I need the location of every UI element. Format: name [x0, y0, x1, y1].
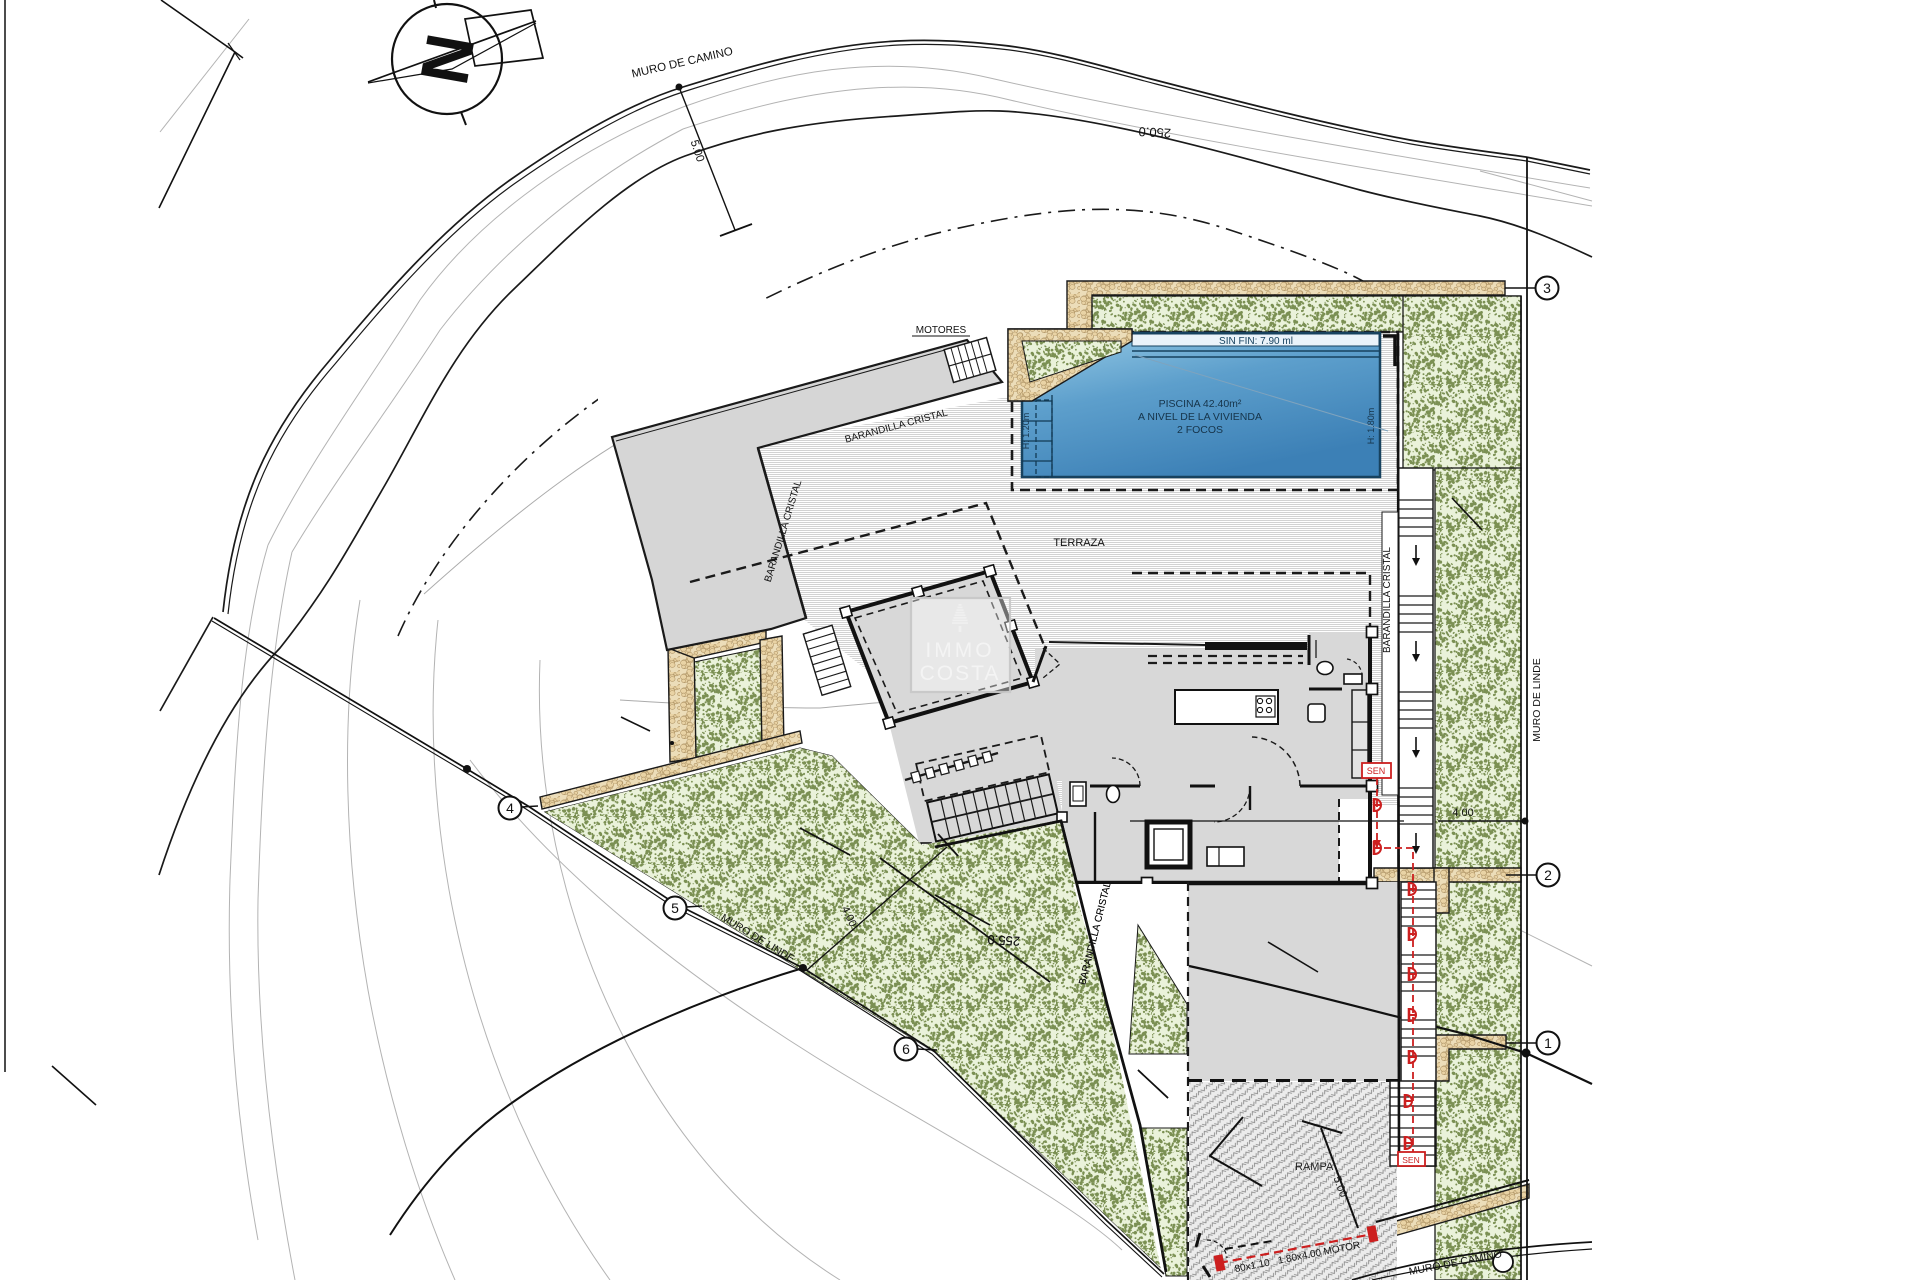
svg-text:3: 3 — [1543, 280, 1551, 296]
svg-text:BARANDILLA CRISTAL: BARANDILLA CRISTAL — [1382, 547, 1393, 653]
svg-text:2 FOCOS: 2 FOCOS — [1177, 424, 1223, 436]
svg-text:RAMPA: RAMPA — [1295, 1161, 1334, 1173]
svg-text:H: 1.80m: H: 1.80m — [1366, 408, 1376, 445]
svg-text:6: 6 — [902, 1041, 910, 1057]
svg-text:250.0: 250.0 — [1138, 124, 1171, 141]
svg-text:SEN: SEN — [1402, 1155, 1419, 1165]
svg-text:COSTA: COSTA — [920, 662, 1001, 685]
svg-text:MOTORES: MOTORES — [916, 325, 967, 336]
svg-text:H: 1.20m: H: 1.20m — [1021, 413, 1031, 450]
svg-text:255.0: 255.0 — [987, 932, 1020, 949]
svg-text:4: 4 — [506, 800, 514, 816]
svg-text:A NIVEL DE LA VIVIENDA: A NIVEL DE LA VIVIENDA — [1138, 411, 1262, 423]
svg-text:4.00: 4.00 — [1452, 807, 1473, 819]
svg-text:IMMO: IMMO — [925, 639, 994, 662]
svg-text:TERRAZA: TERRAZA — [1053, 537, 1105, 549]
svg-text:SIN FIN: 7.90 ml: SIN FIN: 7.90 ml — [1219, 336, 1293, 347]
svg-text:5: 5 — [671, 900, 679, 916]
svg-text:1: 1 — [1544, 1035, 1552, 1051]
svg-text:SEN: SEN — [1367, 766, 1386, 776]
svg-text:2: 2 — [1544, 867, 1552, 883]
svg-text:MURO DE LINDE: MURO DE LINDE — [1531, 658, 1543, 741]
svg-text:PISCINA 42.40m²: PISCINA 42.40m² — [1159, 398, 1242, 410]
